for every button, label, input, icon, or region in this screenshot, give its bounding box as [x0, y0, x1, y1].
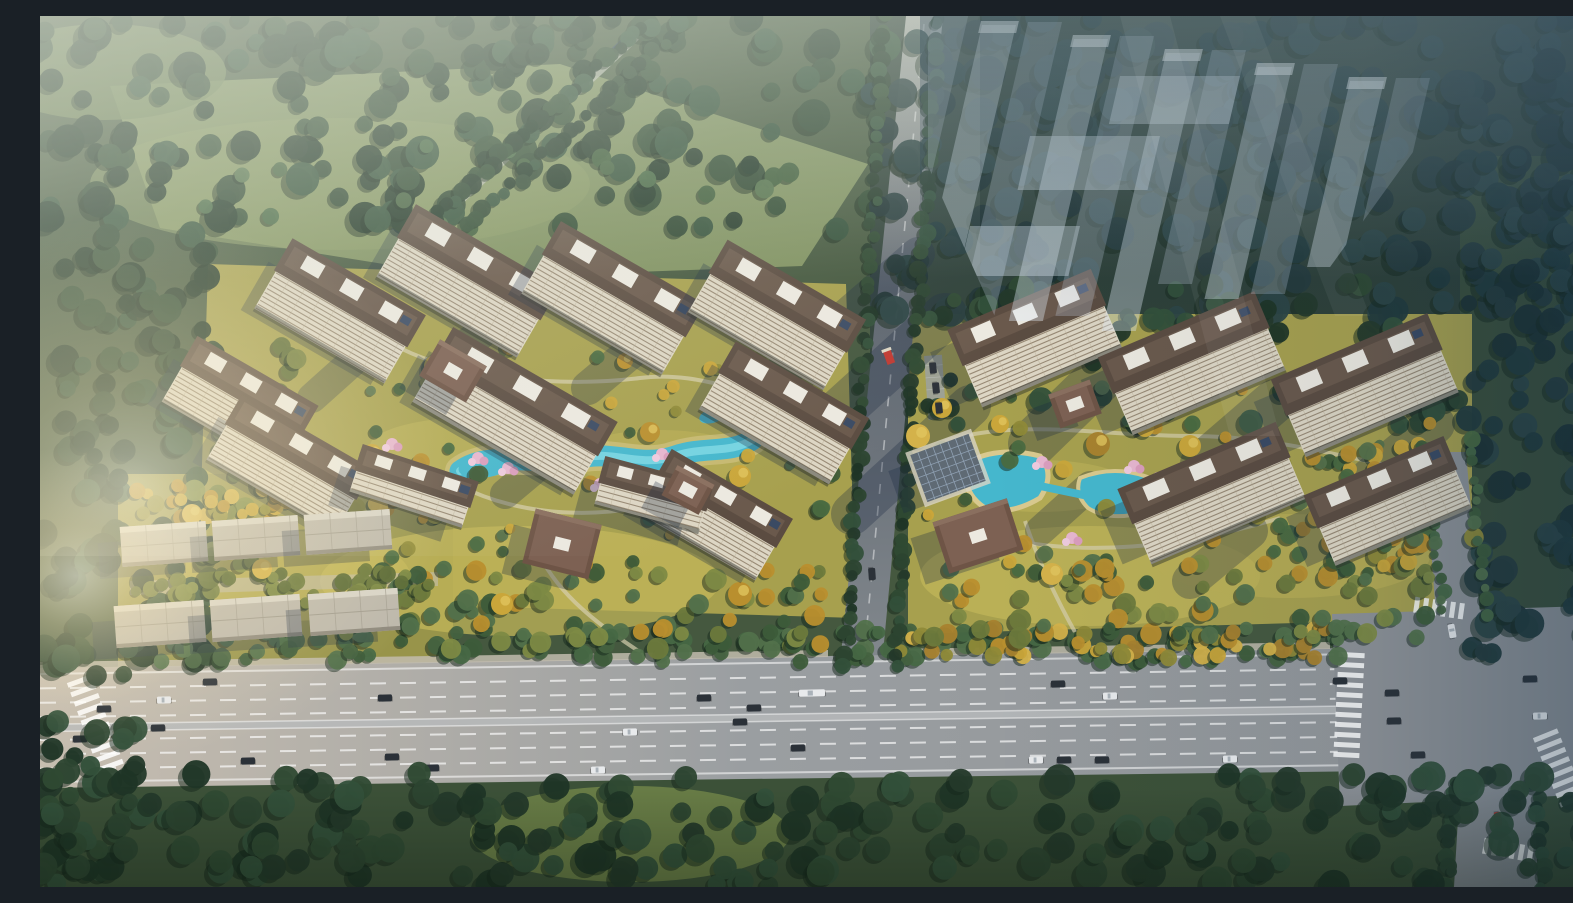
tree — [689, 594, 709, 614]
tree — [675, 627, 689, 641]
tree — [794, 574, 810, 590]
rendering-canvas: Aerial masterplan rendering of a residen… — [40, 16, 1573, 887]
tree — [889, 632, 903, 646]
tree — [897, 578, 909, 590]
tree — [450, 626, 463, 639]
tree — [811, 635, 829, 653]
vehicle-body — [241, 757, 255, 764]
vehicle-windshield — [628, 729, 631, 734]
tree — [963, 579, 980, 596]
vehicle-body — [791, 744, 805, 751]
vehicle-car — [384, 753, 400, 760]
tree — [846, 635, 856, 645]
vehicle-car — [377, 694, 393, 701]
vehicle-body — [697, 694, 711, 701]
golden-tree-highlight — [738, 585, 749, 596]
tree — [843, 590, 857, 604]
tree — [651, 566, 668, 583]
tree — [491, 632, 511, 652]
tree — [844, 611, 858, 625]
vehicle-car — [790, 744, 806, 751]
vehicle-body — [733, 718, 747, 725]
tree — [530, 632, 552, 654]
tree — [473, 615, 490, 632]
tree — [297, 769, 319, 791]
tree — [889, 649, 902, 662]
aerial-rendering: Aerial masterplan rendering of a residen… — [40, 16, 1573, 887]
tree — [924, 627, 944, 647]
vehicle-car — [622, 728, 638, 735]
tree — [952, 609, 967, 624]
vehicle-car — [696, 694, 712, 701]
tree — [677, 644, 693, 660]
tree — [794, 625, 809, 640]
tree — [441, 638, 461, 658]
tree — [941, 649, 953, 661]
tree — [763, 624, 779, 640]
tree — [971, 620, 989, 638]
tree — [423, 607, 440, 624]
tree — [763, 640, 780, 657]
vehicle-body — [378, 694, 392, 701]
tree — [942, 584, 959, 601]
tree — [653, 622, 668, 637]
tree — [647, 638, 669, 660]
tree — [815, 587, 828, 600]
tree — [81, 756, 101, 776]
tree — [804, 605, 825, 626]
tree — [872, 626, 885, 639]
vehicle-body — [747, 704, 761, 711]
vehicle-body — [868, 568, 876, 580]
tree — [590, 628, 608, 646]
tree — [590, 599, 603, 612]
vehicle-truck — [798, 689, 826, 696]
vehicle-body — [385, 753, 399, 760]
tree — [627, 589, 640, 602]
tree — [777, 615, 790, 628]
tree — [630, 567, 643, 580]
tree — [627, 555, 640, 568]
tree — [892, 660, 905, 673]
vehicle-car — [590, 766, 606, 773]
tree — [675, 766, 698, 789]
vehicle-car — [746, 704, 762, 711]
tree — [739, 632, 760, 653]
tree — [43, 768, 64, 789]
tree — [517, 628, 530, 641]
golden-tree-highlight — [500, 596, 510, 606]
tree — [631, 649, 646, 664]
vehicle-windshield — [596, 767, 599, 772]
tree — [710, 626, 727, 643]
vehicle-car — [240, 757, 256, 764]
tree — [569, 630, 587, 648]
tree — [490, 572, 503, 585]
tree — [457, 589, 478, 610]
vehicle-car — [868, 567, 876, 581]
bottom-vignette — [40, 788, 1573, 887]
tree — [851, 644, 867, 660]
tree — [723, 613, 737, 627]
tree — [835, 658, 851, 674]
tree — [889, 596, 905, 612]
vehicle-windshield — [808, 690, 813, 695]
tree — [527, 582, 546, 601]
tree — [633, 624, 649, 640]
tree — [847, 570, 858, 581]
vehicle-car — [732, 718, 748, 725]
tree — [182, 760, 210, 788]
tree — [758, 588, 775, 605]
tree — [466, 560, 486, 580]
